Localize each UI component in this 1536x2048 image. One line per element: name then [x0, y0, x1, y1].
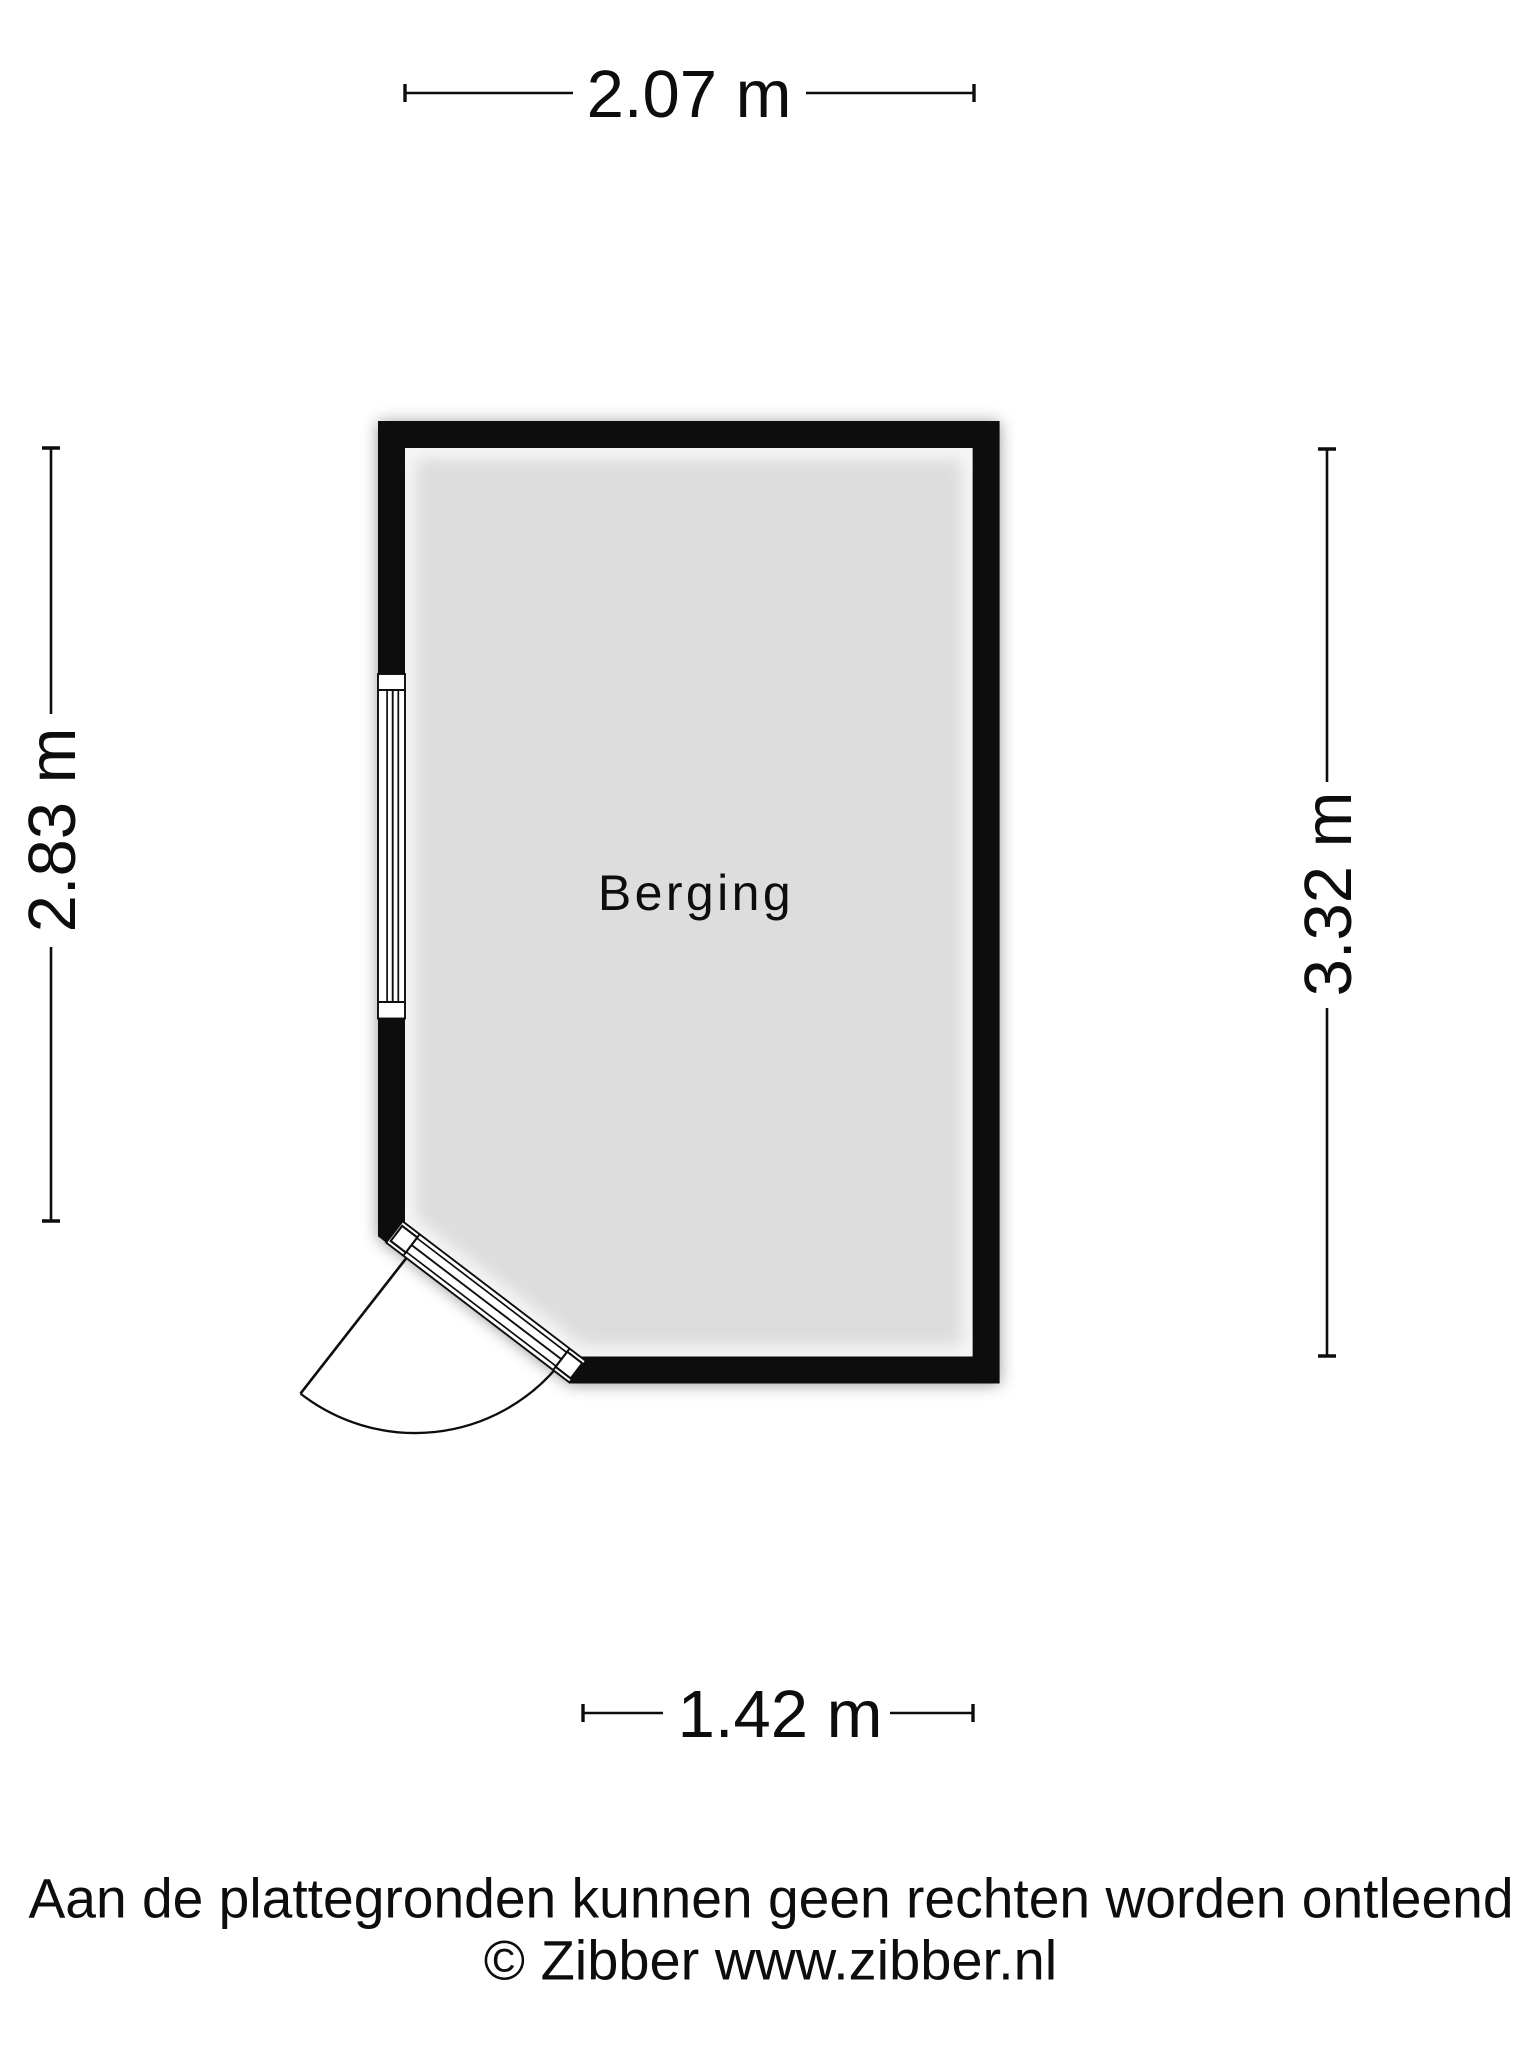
svg-text:2.07 m: 2.07 m [587, 57, 792, 132]
svg-text:1.42 m: 1.42 m [678, 1677, 883, 1752]
svg-text:2.83 m: 2.83 m [15, 728, 90, 933]
svg-text:Berging: Berging [598, 865, 794, 921]
svg-text:© Zibber www.zibber.nl: © Zibber www.zibber.nl [484, 1929, 1057, 1992]
svg-text:3.32 m: 3.32 m [1291, 792, 1366, 997]
svg-text:Aan de plattegronden kunnen ge: Aan de plattegronden kunnen geen rechten… [28, 1868, 1513, 1930]
